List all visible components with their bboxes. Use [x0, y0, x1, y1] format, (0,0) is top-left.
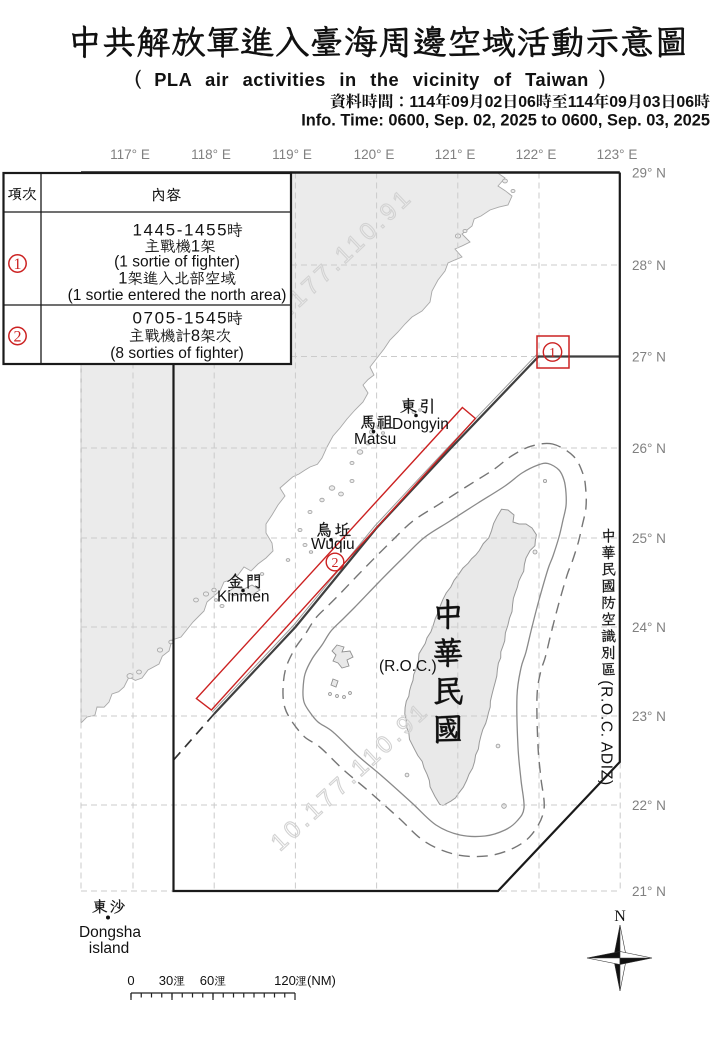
svg-text:Info. Time: 0600, Sep. 02, 202: Info. Time: 0600, Sep. 02, 2025 to 0600,… — [301, 112, 710, 130]
svg-text:118° E: 118° E — [191, 147, 231, 162]
svg-text:121° E: 121° E — [435, 147, 476, 162]
svg-text:(8 sorties of fighter): (8 sorties of fighter) — [110, 345, 244, 362]
svg-text:PLA air activities in the vici: PLA air activities in the vicinity of Ta… — [154, 69, 589, 90]
svg-text:117° E: 117° E — [110, 147, 150, 162]
svg-text:123° E: 123° E — [597, 147, 638, 162]
svg-text:03: 03 — [643, 94, 661, 111]
svg-text:114: 114 — [409, 94, 435, 111]
svg-text:2: 2 — [332, 556, 339, 571]
svg-text:8: 8 — [191, 327, 200, 345]
svg-text:27° N: 27° N — [632, 350, 666, 365]
svg-text:0705-1545: 0705-1545 — [133, 309, 229, 328]
svg-text:114: 114 — [568, 94, 594, 111]
svg-text:(1 sortie of fighter): (1 sortie of fighter) — [114, 254, 240, 271]
svg-text:1: 1 — [549, 346, 556, 361]
svg-text:Matsu: Matsu — [354, 431, 396, 448]
svg-text:09: 09 — [451, 94, 469, 111]
svg-text:(R.O.C. ADIZ): (R.O.C. ADIZ) — [598, 680, 615, 786]
svg-text:(R.O.C.): (R.O.C.) — [379, 658, 437, 675]
svg-text:29° N: 29° N — [632, 166, 666, 181]
svg-text:02: 02 — [485, 94, 503, 111]
svg-text:Dongyin: Dongyin — [392, 416, 449, 433]
svg-text:(1 sortie entered the north ar: (1 sortie entered the north area) — [68, 287, 287, 304]
svg-text:2: 2 — [14, 329, 22, 346]
svg-text:1: 1 — [118, 270, 127, 288]
svg-text:120: 120 — [274, 973, 296, 988]
svg-text:Dongsha: Dongsha — [79, 924, 141, 941]
svg-text:25° N: 25° N — [632, 531, 666, 546]
svg-text:120° E: 120° E — [354, 147, 395, 162]
svg-text:1: 1 — [14, 256, 22, 273]
svg-text:09: 09 — [609, 94, 627, 111]
svg-text:26° N: 26° N — [632, 441, 666, 456]
svg-text:06: 06 — [676, 94, 694, 111]
svg-text:1445-1455: 1445-1455 — [133, 221, 229, 240]
svg-text:60: 60 — [200, 973, 214, 988]
svg-text:24° N: 24° N — [632, 620, 666, 635]
svg-text:30: 30 — [159, 973, 173, 988]
svg-text:28° N: 28° N — [632, 258, 666, 273]
svg-text:island: island — [89, 940, 130, 957]
svg-text:21° N: 21° N — [632, 884, 666, 899]
svg-text:06: 06 — [518, 94, 536, 111]
svg-text:23° N: 23° N — [632, 709, 666, 724]
svg-text:Kinmen: Kinmen — [217, 589, 270, 606]
svg-text:Wuqiu: Wuqiu — [311, 536, 355, 553]
svg-text:119° E: 119° E — [272, 147, 312, 162]
svg-text:22° N: 22° N — [632, 798, 666, 813]
svg-text:0: 0 — [127, 973, 134, 988]
svg-text:(NM): (NM) — [307, 973, 336, 988]
svg-text:N: N — [614, 908, 626, 925]
svg-text:122° E: 122° E — [516, 147, 557, 162]
